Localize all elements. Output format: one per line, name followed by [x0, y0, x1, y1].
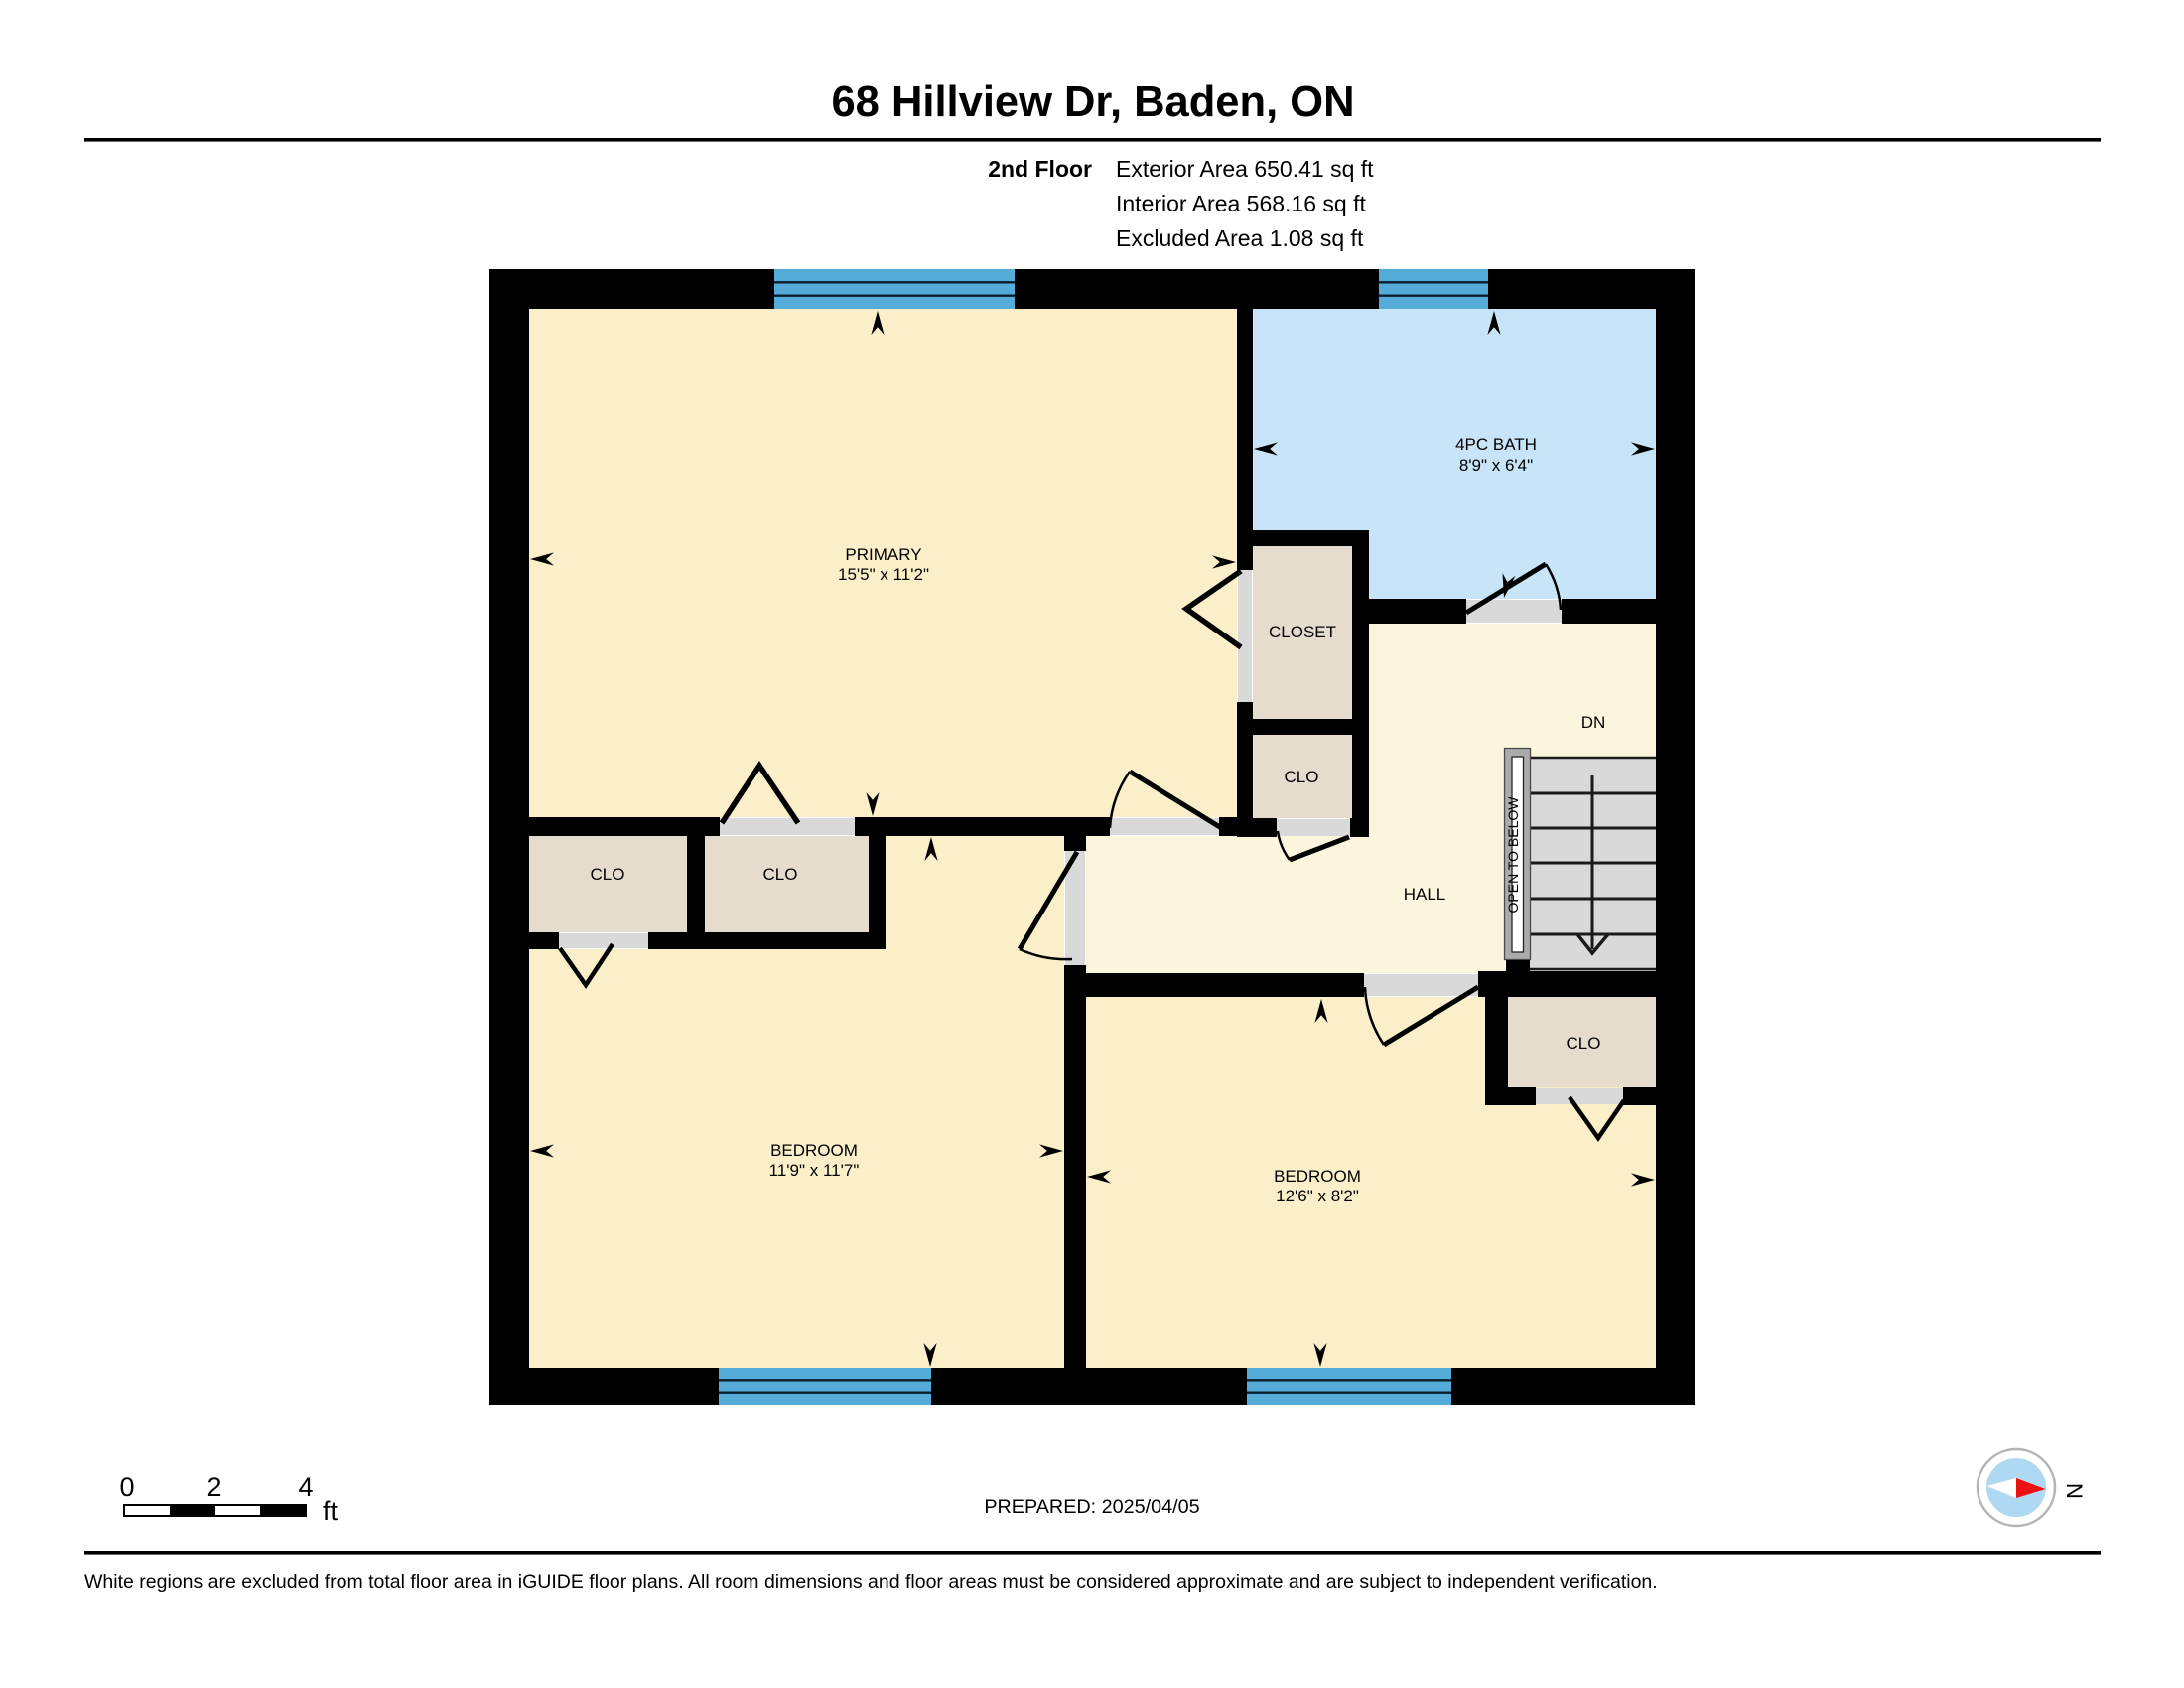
svg-text:Interior Area 568.16 sq ft: Interior Area 568.16 sq ft [1116, 191, 1366, 216]
svg-text:12'6" x 8'2": 12'6" x 8'2" [1276, 1187, 1359, 1205]
svg-text:15'5" x 11'2": 15'5" x 11'2" [838, 565, 929, 584]
svg-text:White regions are excluded fro: White regions are excluded from total fl… [84, 1571, 1658, 1593]
svg-text:68 Hillview Dr, Baden, ON: 68 Hillview Dr, Baden, ON [831, 78, 1354, 126]
svg-text:4PC BATH: 4PC BATH [1455, 435, 1537, 454]
svg-text:CLOSET: CLOSET [1269, 623, 1336, 641]
svg-text:Excluded Area 1.08 sq ft: Excluded Area 1.08 sq ft [1116, 225, 1364, 251]
svg-text:PRIMARY: PRIMARY [845, 545, 921, 564]
svg-text:11'9" x 11'7": 11'9" x 11'7" [769, 1161, 860, 1180]
svg-text:CLO: CLO [591, 865, 625, 884]
svg-text:CLO: CLO [763, 865, 798, 884]
svg-text:BEDROOM: BEDROOM [770, 1141, 858, 1160]
svg-text:CLO: CLO [1285, 768, 1319, 786]
svg-text:ft: ft [323, 1496, 339, 1526]
svg-text:HALL: HALL [1404, 885, 1446, 904]
svg-text:2nd Floor: 2nd Floor [988, 156, 1092, 182]
svg-text:BEDROOM: BEDROOM [1274, 1167, 1361, 1186]
svg-text:Exterior Area 650.41 sq ft: Exterior Area 650.41 sq ft [1116, 156, 1374, 182]
svg-text:DN: DN [1581, 713, 1606, 732]
svg-text:N: N [2062, 1483, 2087, 1499]
svg-text:CLO: CLO [1567, 1034, 1601, 1053]
svg-text:0: 0 [119, 1473, 134, 1502]
svg-text:4: 4 [298, 1473, 313, 1502]
svg-text:8'9" x 6'4": 8'9" x 6'4" [1459, 456, 1533, 475]
svg-text:2: 2 [206, 1473, 221, 1502]
svg-text:PREPARED: 2025/04/05: PREPARED: 2025/04/05 [984, 1496, 1199, 1518]
svg-text:OPEN TO BELOW: OPEN TO BELOW [1505, 796, 1521, 914]
